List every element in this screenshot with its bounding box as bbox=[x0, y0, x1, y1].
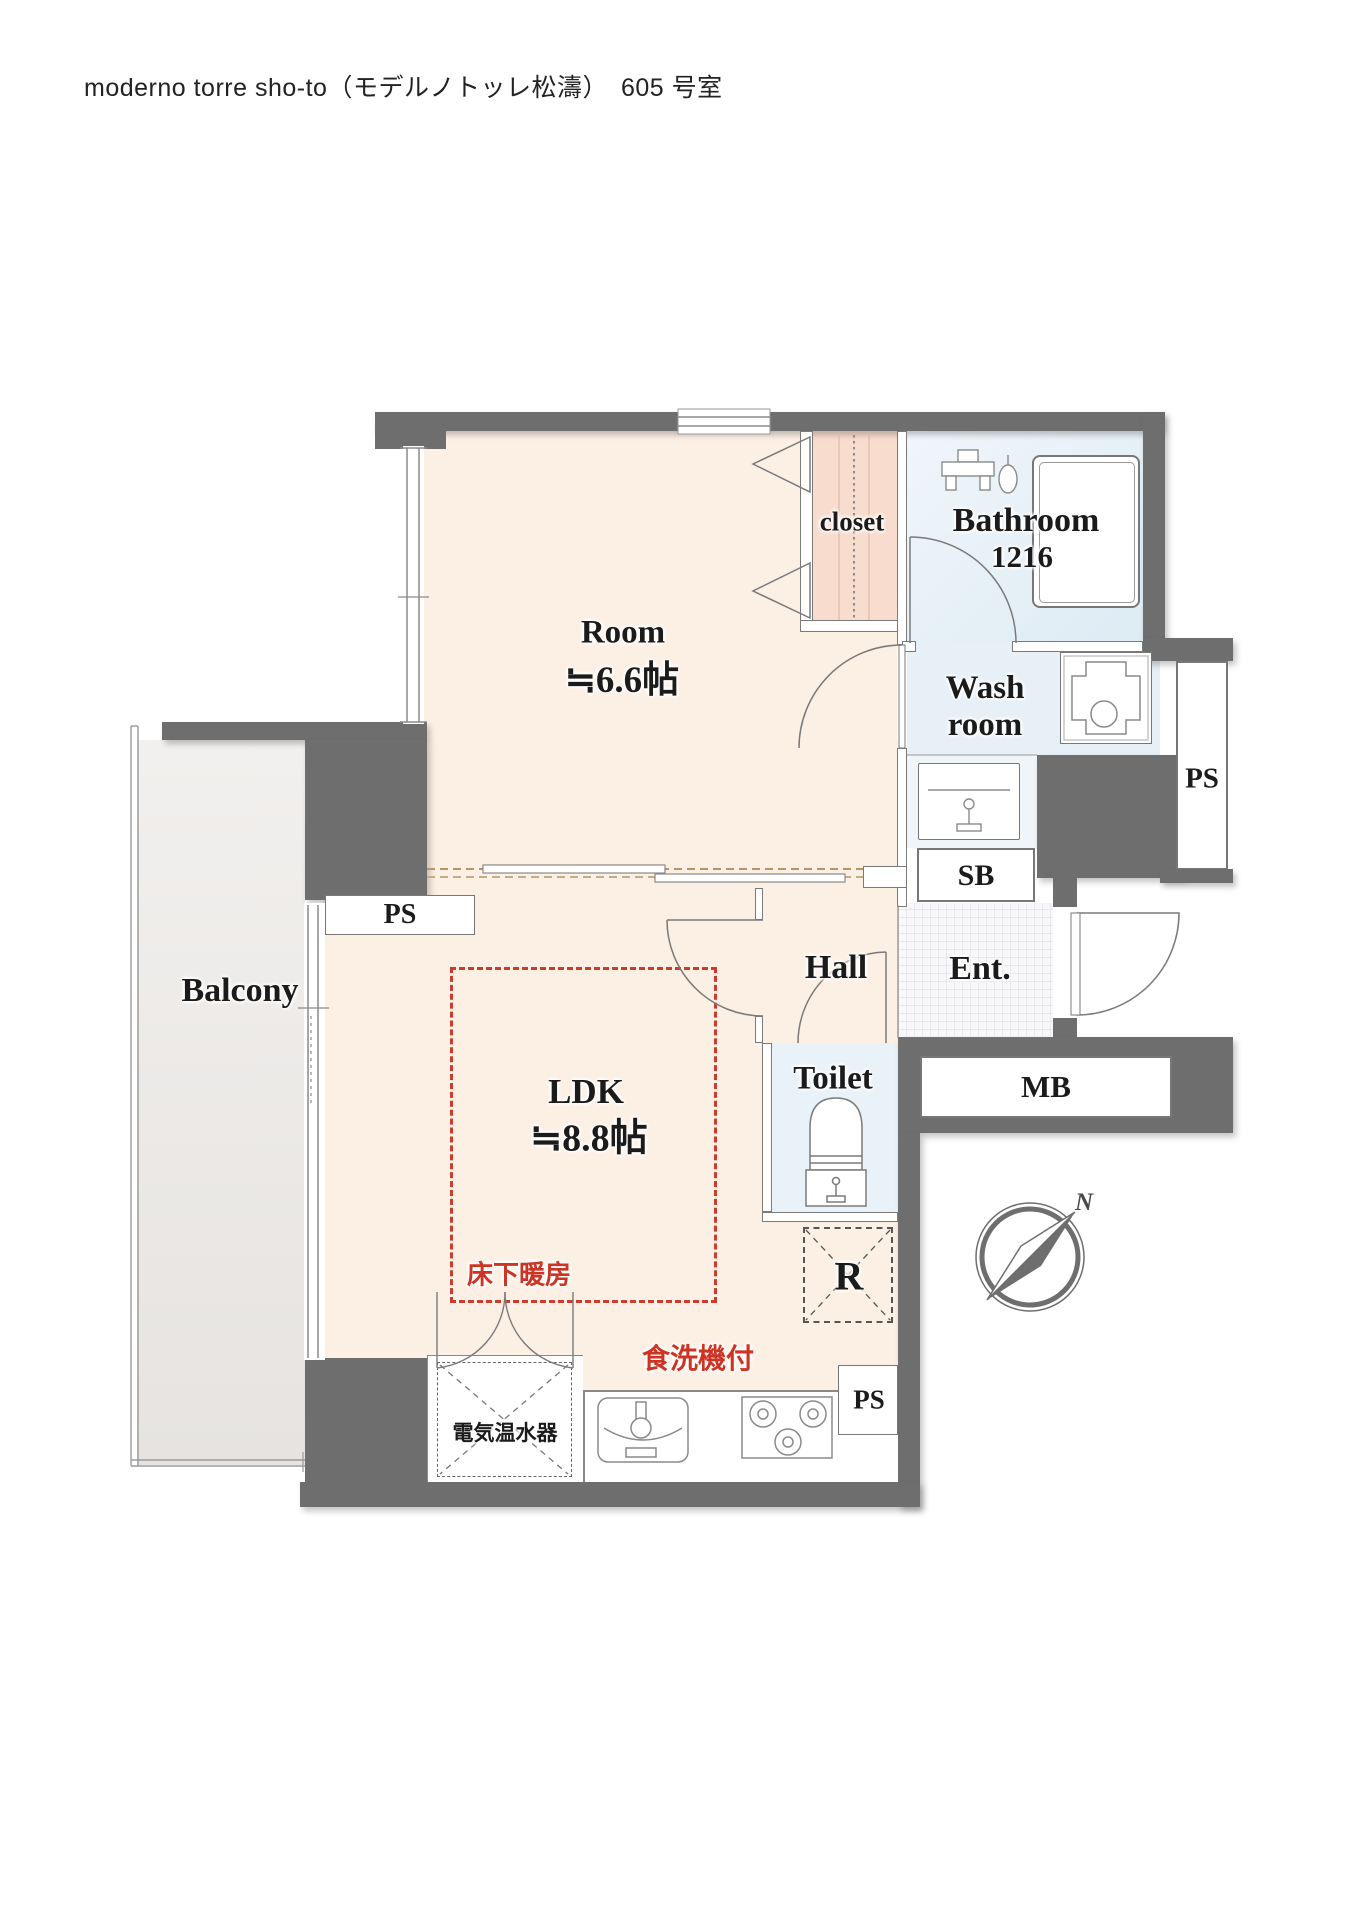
compass-icon bbox=[976, 1203, 1084, 1311]
wall-bath-wash-divider bbox=[1012, 641, 1143, 652]
wall-bottom bbox=[300, 1482, 920, 1507]
bathroom-label: Bathroom bbox=[953, 502, 1100, 540]
hall-label: Hall bbox=[805, 949, 867, 987]
washroom-label-line1: Wash bbox=[946, 670, 1025, 707]
room-size: ≒6.6帖 bbox=[565, 649, 679, 703]
sb-label: SB bbox=[958, 859, 995, 893]
refrigerator-label: R bbox=[835, 1253, 864, 1300]
compass-north-label: N bbox=[1075, 1189, 1093, 1217]
wall-top bbox=[375, 412, 1163, 431]
ps-ldk-label: PS bbox=[384, 899, 417, 931]
mb-label: MB bbox=[1021, 1069, 1071, 1105]
wall-ps-jut bbox=[1143, 638, 1233, 661]
room-label: Room bbox=[581, 615, 665, 652]
door-entrance bbox=[1071, 913, 1179, 1015]
wall-right-upper bbox=[1143, 412, 1165, 640]
wall-nw-block bbox=[305, 740, 427, 900]
wall-toilet-west bbox=[762, 1043, 772, 1212]
entrance-doorway-floor bbox=[1053, 903, 1077, 1018]
wall-right-lower bbox=[898, 1133, 920, 1507]
ps-kitchen-label: PS bbox=[853, 1385, 885, 1416]
wall-hall-west-upper bbox=[755, 888, 763, 920]
wall-bathroom-left bbox=[897, 431, 907, 645]
floor-heating-label: 床下暖房 bbox=[467, 1255, 571, 1292]
wall-hall-west-lower bbox=[755, 1016, 763, 1043]
washroom-label-line2: room bbox=[946, 707, 1025, 744]
toilet-label: Toilet bbox=[793, 1061, 872, 1098]
floor-plan-page: moderno torre sho-to（モデルノトッレ松濤） 605 号室 bbox=[0, 0, 1357, 1920]
wall-below-ps bbox=[1160, 869, 1233, 883]
wall-top-left-corner bbox=[375, 412, 446, 449]
wall-closet-left bbox=[800, 431, 813, 622]
wall-slider-end bbox=[863, 866, 907, 888]
washroom-label: Wash room bbox=[946, 670, 1025, 744]
bathroom-size: 1216 bbox=[991, 539, 1053, 575]
wall-toilet-bottom bbox=[762, 1212, 898, 1222]
wall-ent-jamb-top bbox=[1053, 877, 1077, 907]
wall-bath-wash-stub bbox=[902, 641, 916, 652]
wall-closet-bottom bbox=[800, 620, 907, 632]
wall-sw-block bbox=[305, 1358, 427, 1482]
vanity-unit bbox=[918, 763, 1020, 840]
balcony-floor bbox=[137, 740, 305, 1465]
closet-label: closet bbox=[820, 507, 884, 538]
balcony-label: Balcony bbox=[181, 972, 298, 1010]
ldk-size: ≒8.8帖 bbox=[530, 1107, 647, 1162]
dishwasher-label: 食洗機付 bbox=[642, 1337, 754, 1377]
page-title: moderno torre sho-to（モデルノトッレ松濤） 605 号室 bbox=[84, 68, 723, 104]
ps-right-label: PS bbox=[1185, 763, 1219, 796]
laundry-pan bbox=[1060, 652, 1152, 744]
wall-balcony-top bbox=[162, 722, 427, 740]
water-heater-label: 電気温水器 bbox=[453, 1417, 558, 1447]
entrance-label: Ent. bbox=[949, 950, 1010, 988]
wall-mid-block bbox=[1037, 755, 1183, 878]
